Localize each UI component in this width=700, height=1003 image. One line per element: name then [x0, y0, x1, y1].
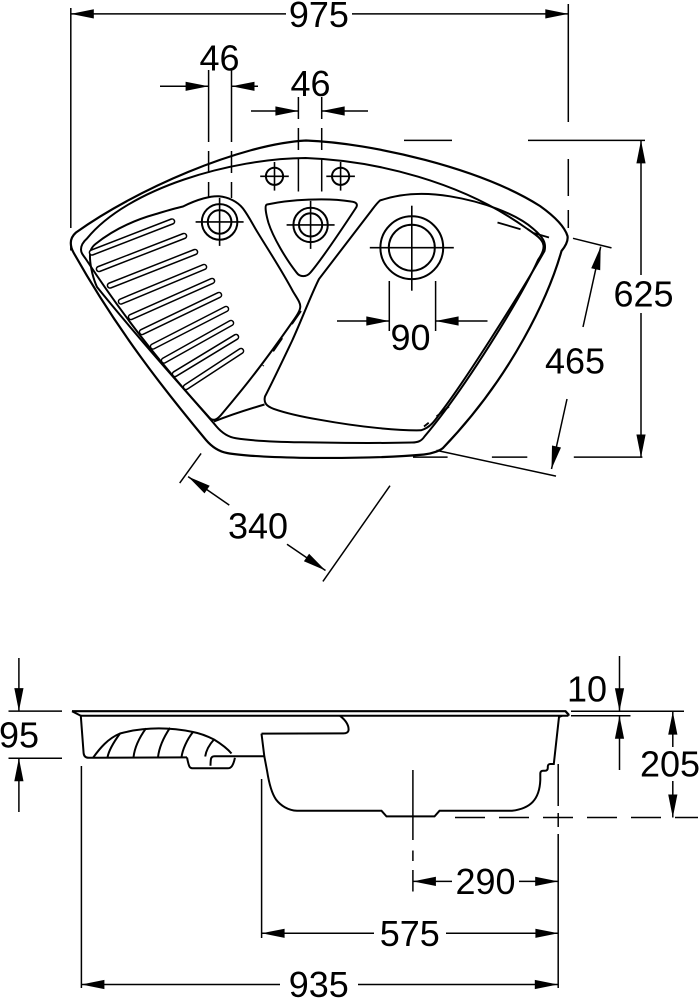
- svg-text:625: 625: [613, 274, 673, 315]
- svg-text:90: 90: [390, 317, 430, 358]
- svg-text:935: 935: [289, 964, 349, 998]
- svg-text:975: 975: [289, 0, 349, 35]
- svg-text:290: 290: [455, 861, 515, 902]
- svg-text:95: 95: [0, 715, 39, 756]
- svg-text:10: 10: [567, 669, 607, 710]
- svg-text:46: 46: [199, 38, 239, 79]
- svg-text:465: 465: [545, 341, 605, 382]
- svg-text:46: 46: [290, 63, 330, 104]
- svg-text:340: 340: [228, 506, 288, 547]
- svg-text:205: 205: [640, 744, 700, 785]
- svg-text:575: 575: [380, 913, 440, 954]
